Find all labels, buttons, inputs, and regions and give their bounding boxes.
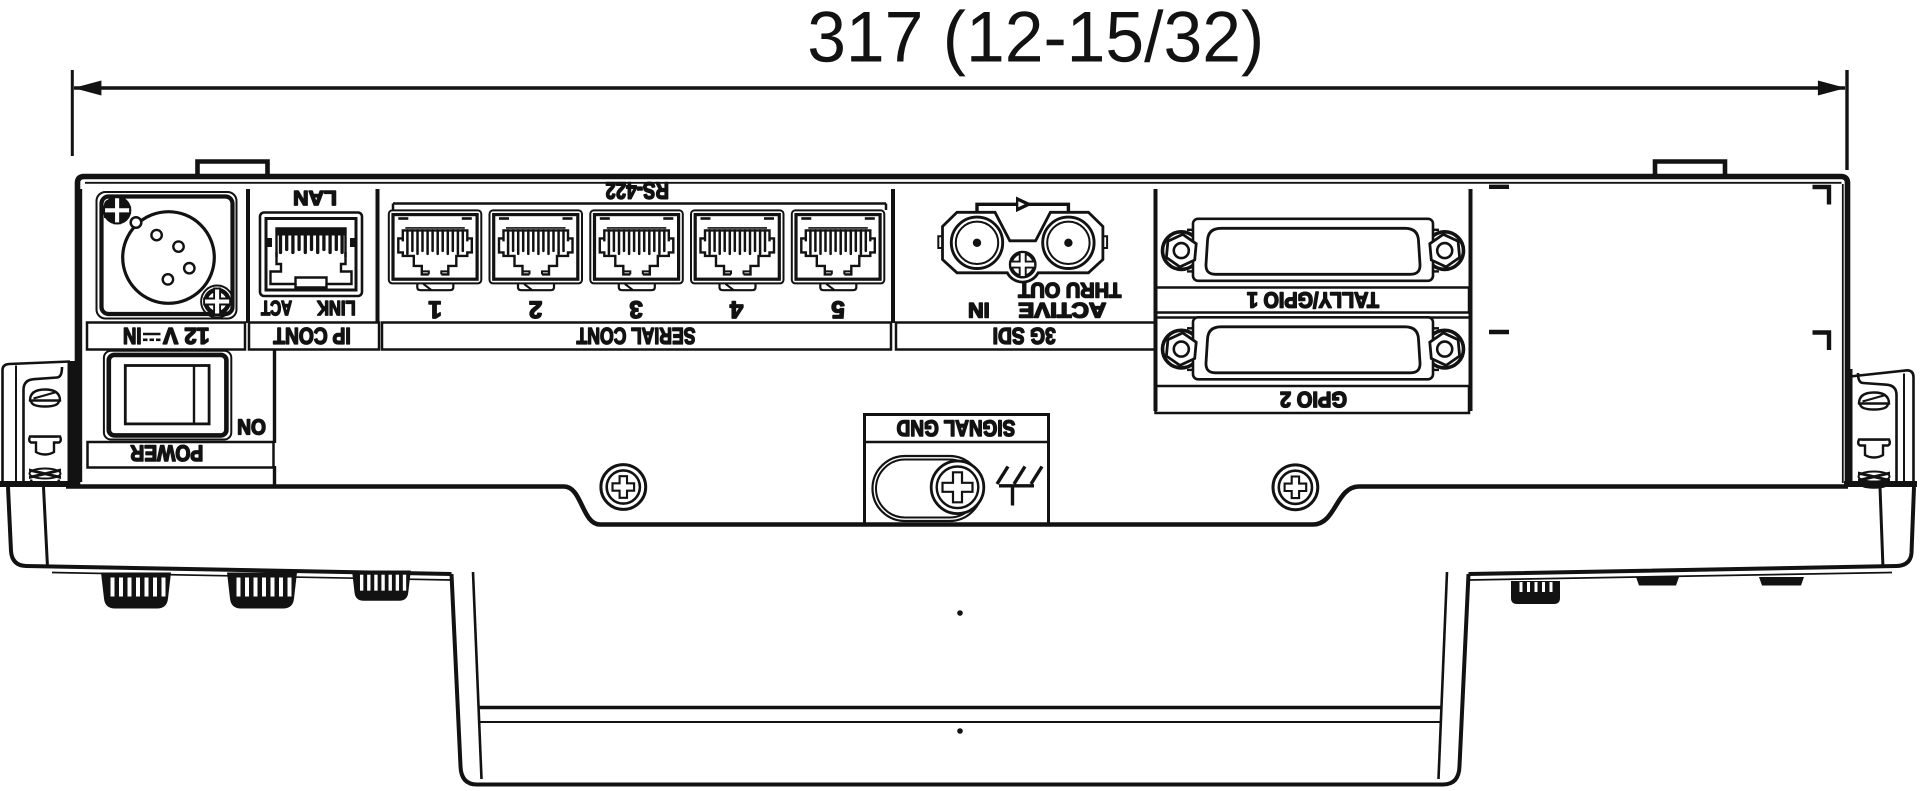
svg-text:12 V: 12 V xyxy=(162,323,209,349)
svg-text:IP CONT: IP CONT xyxy=(273,323,351,349)
svg-text:1: 1 xyxy=(428,295,441,322)
svg-text:SIGNAL GND: SIGNAL GND xyxy=(897,415,1016,440)
svg-text:RS-422: RS-422 xyxy=(605,178,669,204)
svg-text:POWER: POWER xyxy=(130,440,203,465)
svg-text:2: 2 xyxy=(529,295,542,322)
svg-text:LINK: LINK xyxy=(317,296,356,319)
svg-text:LAN: LAN xyxy=(293,186,337,209)
svg-text:3: 3 xyxy=(629,295,642,322)
svg-text:ACT: ACT xyxy=(261,296,292,319)
svg-text:TALLY/GPIO 1: TALLY/GPIO 1 xyxy=(1247,288,1379,313)
svg-text:IN: IN xyxy=(123,323,142,349)
svg-text:3G SDI: 3G SDI xyxy=(993,323,1056,349)
svg-text:GPIO 2: GPIO 2 xyxy=(1280,387,1347,412)
svg-text:4: 4 xyxy=(729,295,743,322)
svg-text:SERIAL CONT: SERIAL CONT xyxy=(577,323,696,349)
svg-text:ACTIVE: ACTIVE xyxy=(1018,298,1106,321)
svg-text:317 (12-15/32): 317 (12-15/32) xyxy=(807,0,1264,78)
svg-text:5: 5 xyxy=(831,295,844,322)
svg-text:ON: ON xyxy=(237,414,266,438)
svg-text:IN: IN xyxy=(968,298,990,321)
svg-text:THRU OUT: THRU OUT xyxy=(1018,278,1121,301)
